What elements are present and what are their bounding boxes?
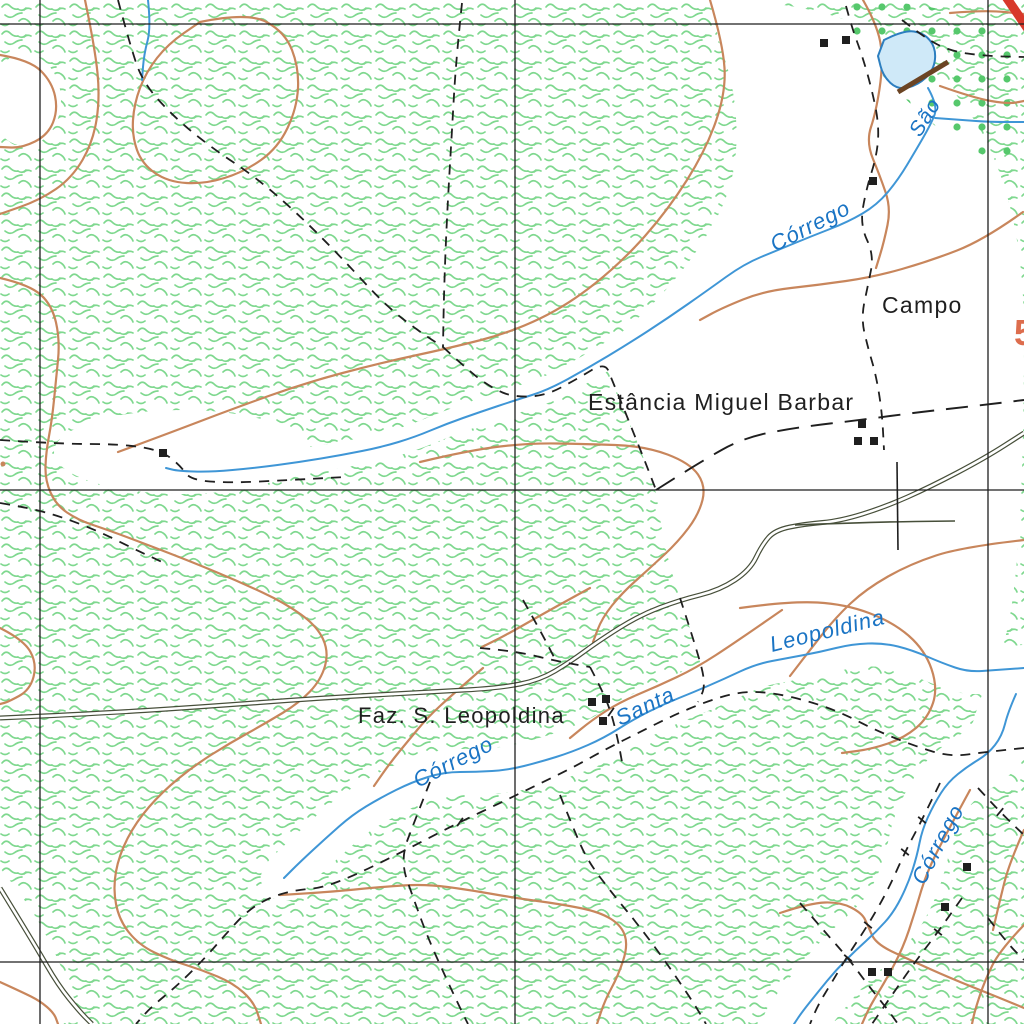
label-partial-number: 5 — [1014, 312, 1024, 353]
building-marker — [869, 177, 877, 185]
building-marker — [159, 449, 167, 457]
topo-map-svg: Estância Miguel BarbarCampoFaz. S. Leopo… — [0, 0, 1024, 1024]
label-estancia-miguel-barbar: Estância Miguel Barbar — [588, 389, 854, 415]
survey-mark — [897, 462, 898, 550]
building-marker — [884, 968, 892, 976]
building-marker — [868, 968, 876, 976]
building-marker — [854, 437, 862, 445]
building-marker — [602, 695, 610, 703]
label-faz-s-leopoldina: Faz. S. Leopoldina — [358, 703, 565, 728]
label-campo: Campo — [882, 292, 963, 318]
building-marker — [599, 717, 607, 725]
building-marker — [858, 420, 866, 428]
map-viewport: Estância Miguel BarbarCampoFaz. S. Leopo… — [0, 0, 1024, 1024]
building-marker — [963, 863, 971, 871]
building-marker — [820, 39, 828, 47]
building-marker — [842, 36, 850, 44]
building-marker — [870, 437, 878, 445]
building-marker — [588, 698, 596, 706]
edge-contour-dot — [1, 462, 6, 467]
building-marker — [941, 903, 949, 911]
